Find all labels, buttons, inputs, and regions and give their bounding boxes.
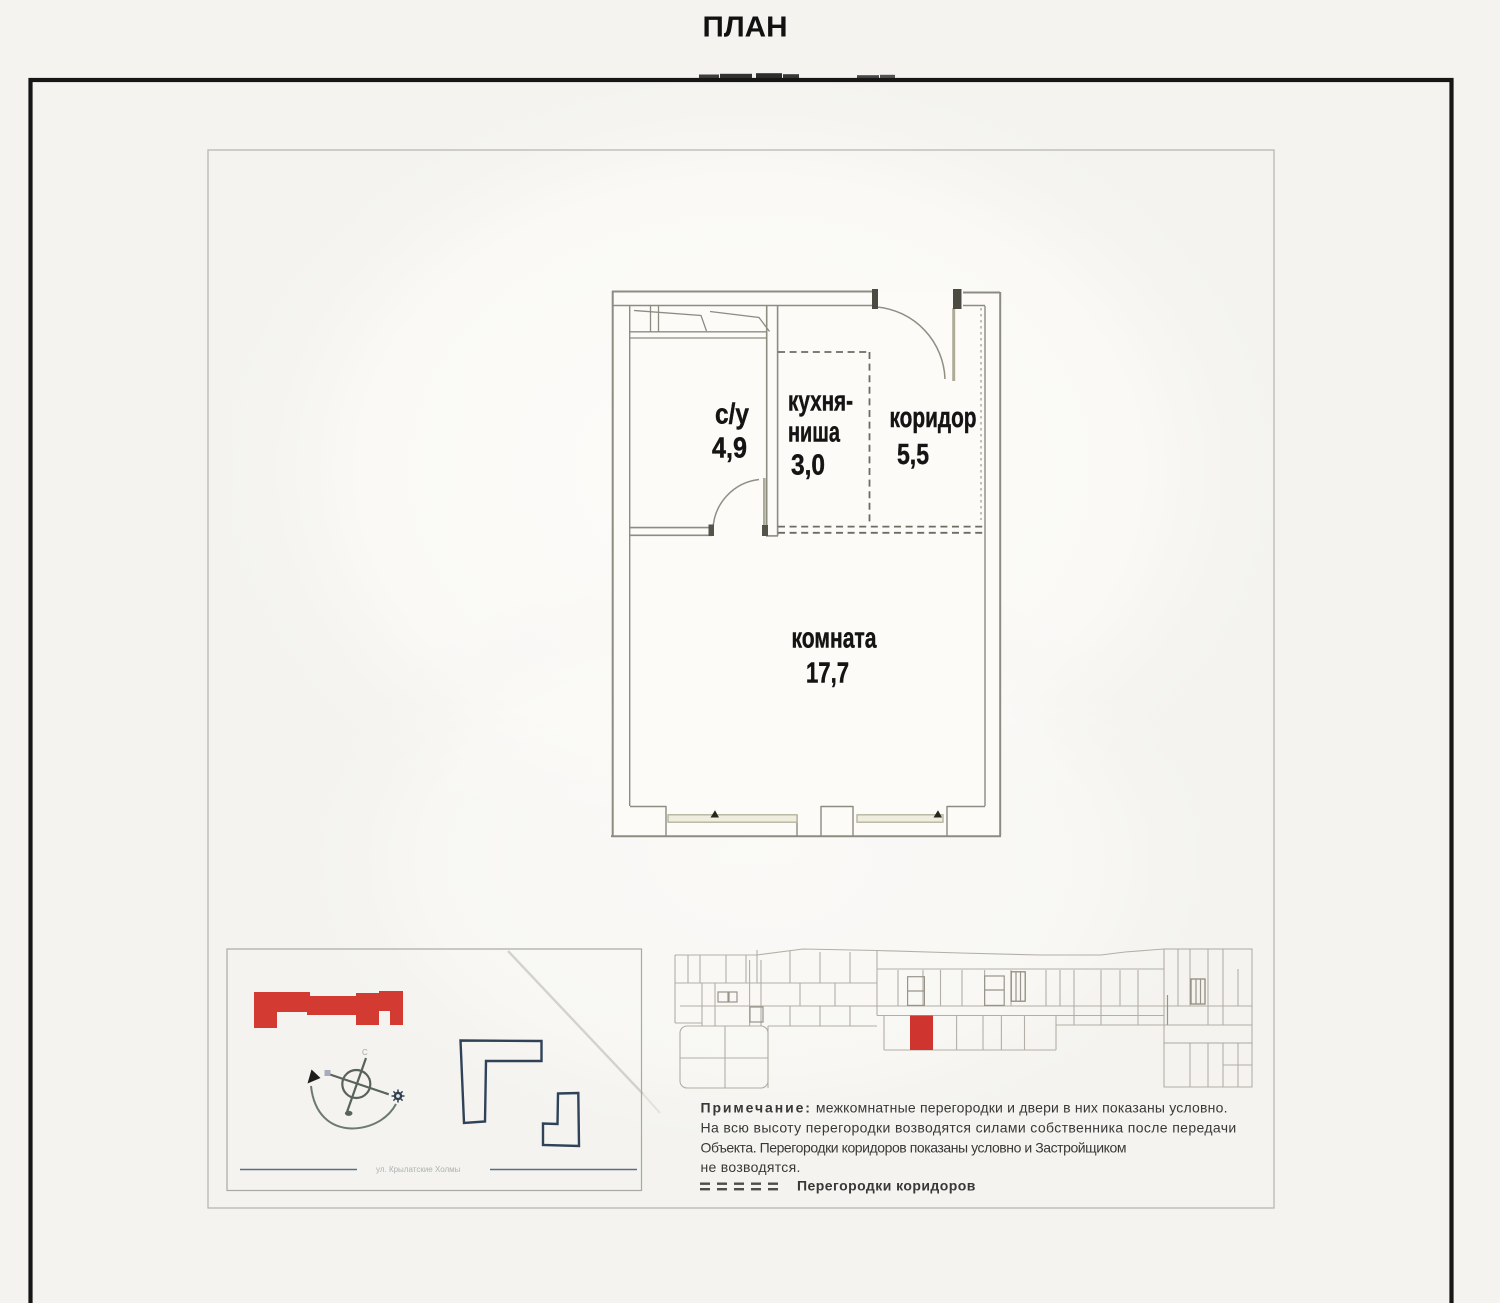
svg-text:ПЛАН: ПЛАН	[703, 12, 788, 44]
svg-text:Перегородки коридоров: Перегородки коридоров	[797, 1178, 976, 1194]
svg-text:17,7: 17,7	[806, 658, 849, 690]
svg-text:комната: комната	[792, 623, 878, 655]
svg-text:кухня-: кухня-	[788, 386, 853, 418]
svg-text:С: С	[362, 1048, 368, 1057]
svg-text:Объекта. Перегородки коридоров: Объекта. Перегородки коридоров показаны …	[701, 1140, 1127, 1156]
svg-text:3,0: 3,0	[791, 450, 825, 482]
svg-text:ул. Крылатские Холмы: ул. Крылатские Холмы	[376, 1165, 461, 1174]
svg-text:4,9: 4,9	[712, 433, 747, 465]
svg-text:не возводятся.: не возводятся.	[701, 1159, 801, 1175]
svg-text:коридор: коридор	[890, 402, 977, 434]
svg-text:5,5: 5,5	[897, 439, 929, 471]
svg-text:Примечание: межкомнатные перег: Примечание: межкомнатные перегородки и д…	[701, 1100, 1228, 1116]
svg-text:с/у: с/у	[715, 399, 749, 431]
svg-text:ниша: ниша	[788, 417, 841, 449]
svg-text:На всю высоту перегородки возв: На всю высоту перегородки возводятся сил…	[701, 1120, 1237, 1136]
